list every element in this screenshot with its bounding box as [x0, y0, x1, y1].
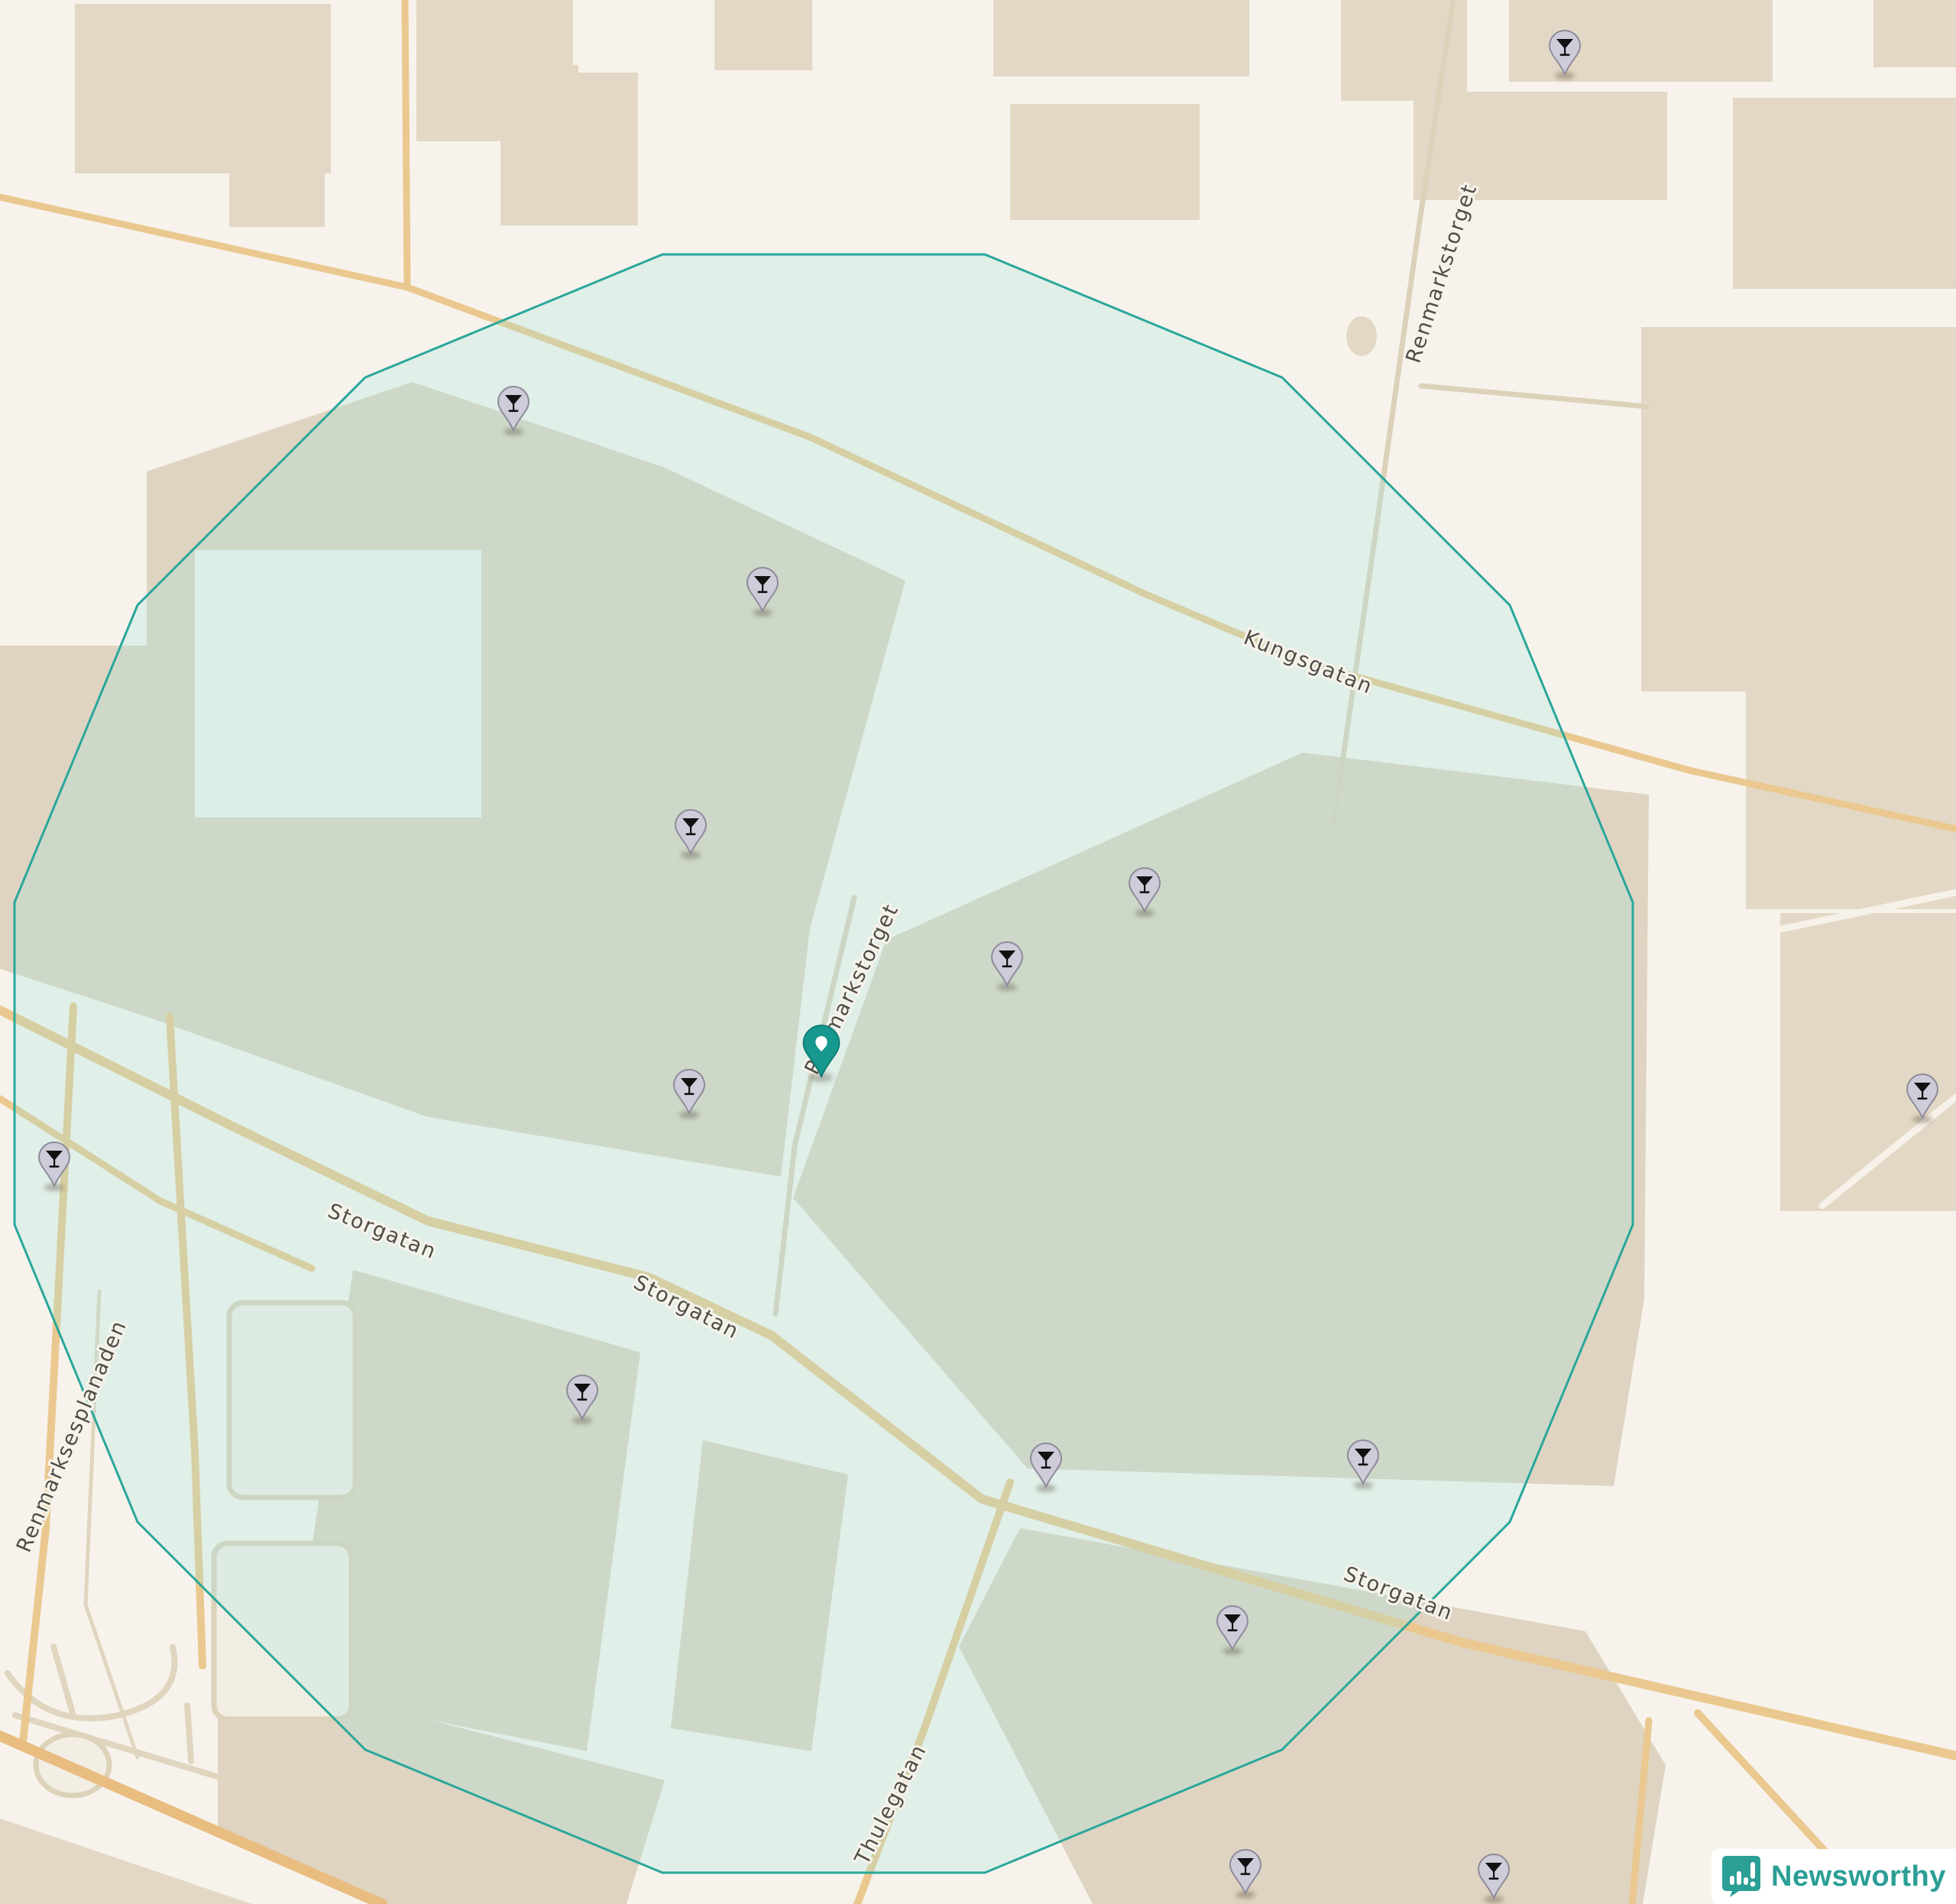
map-canvas[interactable]: RenmarkstorgetKungsgatanRenmarkstorgetSt… [0, 0, 1956, 1904]
map-root: RenmarkstorgetKungsgatanRenmarkstorgetSt… [0, 0, 1956, 1904]
newsworthy-logo-text: Newsworthy [1771, 1860, 1946, 1893]
newsworthy-logo-icon [1722, 1856, 1760, 1897]
brand-badge[interactable]: Newsworthy [1711, 1849, 1956, 1904]
